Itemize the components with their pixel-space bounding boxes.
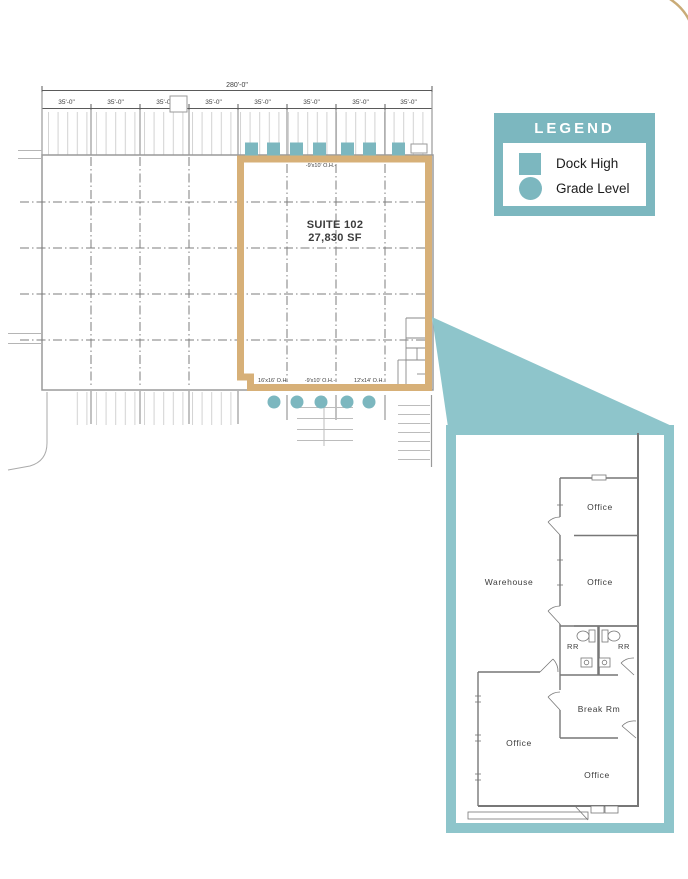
grade-level-marker	[268, 396, 281, 409]
dock-high-marker	[363, 143, 376, 156]
legend: LEGEND Dock High Grade Level	[494, 113, 655, 216]
dock-high-marker	[392, 143, 405, 156]
parking-tick-band-bottom	[70, 392, 238, 425]
dock-high-marker	[313, 143, 326, 156]
room-label-office-bottom-left: Office	[506, 738, 532, 748]
dock-high-square-icon	[519, 153, 541, 175]
legend-item-label: Grade Level	[556, 181, 630, 196]
door-size-label-bottom-right: 12'x14' O.H.	[354, 378, 384, 384]
grade-level-marker	[341, 396, 354, 409]
room-label-office-bottom-right: Office	[584, 770, 610, 780]
room-label-office-top: Office	[587, 502, 613, 512]
legend-item-label: Dock High	[556, 156, 618, 171]
bay-dimension-label: 35'-0"	[254, 99, 271, 106]
door-size-label-bottom-left: 16'x16' O.H.	[258, 378, 288, 384]
bay-dimension-label: 35'-0"	[400, 99, 417, 106]
dock-high-swatch-wrap	[517, 153, 543, 175]
overall-dimension-label: 280'-0"	[226, 82, 248, 89]
grade-level-marker	[291, 396, 304, 409]
site-detail-lines	[8, 151, 47, 471]
grade-level-circle-icon	[519, 177, 542, 200]
grade-level-marker	[315, 396, 328, 409]
room-label-office-mid: Office	[587, 577, 613, 587]
dock-high-marker	[245, 143, 258, 156]
roof-bump	[170, 96, 187, 112]
door-size-label-bottom-center: -9'x10' O.H.-	[305, 378, 336, 384]
room-label-break-room: Break Rm	[578, 704, 621, 714]
legend-item-dock-high: Dock High	[517, 151, 646, 176]
zoom-callout-wedge	[432, 317, 674, 427]
grade-level-swatch-wrap	[517, 177, 543, 200]
grade-level-marker	[363, 396, 376, 409]
legend-title: LEGEND	[494, 113, 655, 143]
bay-dimension-label: 35'-0"	[303, 99, 320, 106]
floorplan-page: 280'-0" 35'-0" 35'-0" 35'-0" 35'-0" 35'-…	[0, 0, 688, 879]
dock-high-marker	[267, 143, 280, 156]
door-size-label-top: -9'x10' O.H.-	[306, 163, 337, 169]
suite-area-label: 27,830 SF	[308, 232, 361, 244]
legend-item-grade-level: Grade Level	[517, 176, 646, 201]
bay-dimension-label: 35'-0"	[107, 99, 124, 106]
legend-body: Dock High Grade Level	[503, 143, 646, 206]
suite-name-label: SUITE 102	[307, 219, 364, 231]
dock-high-marker	[290, 143, 303, 156]
corner-arc-decoration	[665, 0, 688, 22]
stair-bump	[411, 144, 427, 153]
bay-dimension-label: 35'-0"	[352, 99, 369, 106]
grade-level-markers	[268, 396, 376, 409]
bay-dimension-label: 35'-0"	[205, 99, 222, 106]
bay-dimension-label: 35'-0"	[58, 99, 75, 106]
room-label-rr-left: RR	[567, 642, 579, 651]
dimension-lines	[42, 86, 432, 113]
room-label-warehouse: Warehouse	[485, 577, 534, 587]
dock-high-marker	[341, 143, 354, 156]
room-label-rr-right: RR	[618, 642, 630, 651]
